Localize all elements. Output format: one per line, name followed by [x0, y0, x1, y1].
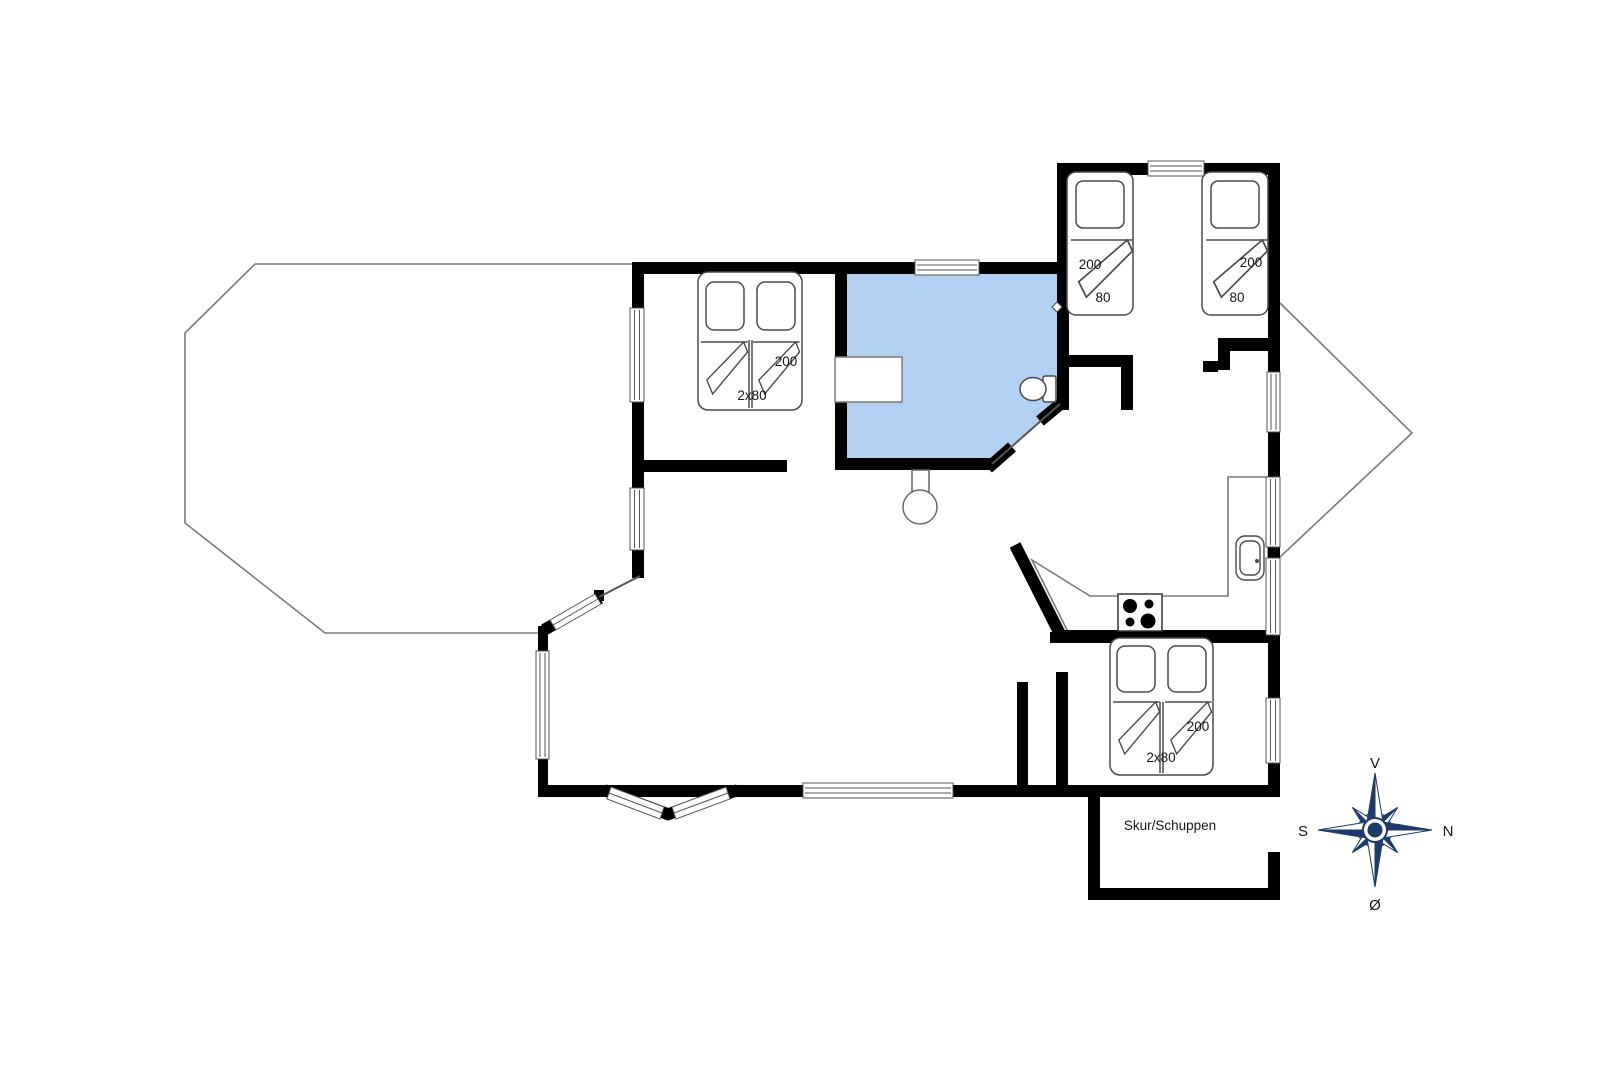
bedroom1-door-line	[599, 576, 640, 597]
bed-length-label: 200	[1187, 719, 1210, 734]
toilet	[1020, 376, 1056, 402]
compass-label-south: S	[1298, 823, 1308, 840]
bed-width-label: 80	[1095, 290, 1110, 305]
stove-hob	[1118, 594, 1162, 631]
window	[536, 651, 549, 759]
diagonal-walls	[544, 401, 1064, 815]
bed-width-label: 2x80	[737, 388, 766, 403]
shed-label: Skur/Schuppen	[1124, 818, 1216, 833]
window	[1266, 698, 1280, 763]
window	[803, 783, 953, 798]
window	[630, 308, 644, 402]
kitchen-sink	[1236, 536, 1264, 580]
compass-label-east: Ø	[1369, 897, 1381, 914]
floor-plan-page: 200 2x80 200 80 200 80 200 2x80 Skur/Sch…	[0, 0, 1600, 1066]
terrace-octagon-outline	[185, 264, 637, 633]
compass-rose	[1318, 773, 1432, 887]
compass-label-north: N	[1443, 823, 1454, 840]
window	[915, 260, 979, 275]
bed-length-label: 200	[775, 354, 798, 369]
window	[550, 594, 601, 630]
bathroom-vanity	[835, 357, 902, 402]
window	[630, 488, 644, 550]
bed-length-label: 200	[1079, 257, 1102, 272]
window	[1266, 477, 1280, 547]
window	[1148, 161, 1204, 176]
bed-width-label: 80	[1229, 290, 1244, 305]
bed-width-label: 2x80	[1146, 750, 1175, 765]
floor-plan-svg: 200 2x80 200 80 200 80 200 2x80 Skur/Sch…	[0, 0, 1600, 1066]
wood-stove	[903, 470, 937, 524]
compass-label-west: V	[1370, 755, 1380, 772]
bed-length-label: 200	[1240, 255, 1263, 270]
terrace-door	[1267, 372, 1280, 432]
window	[1266, 558, 1280, 635]
terrace-triangle-outline	[1280, 303, 1412, 557]
